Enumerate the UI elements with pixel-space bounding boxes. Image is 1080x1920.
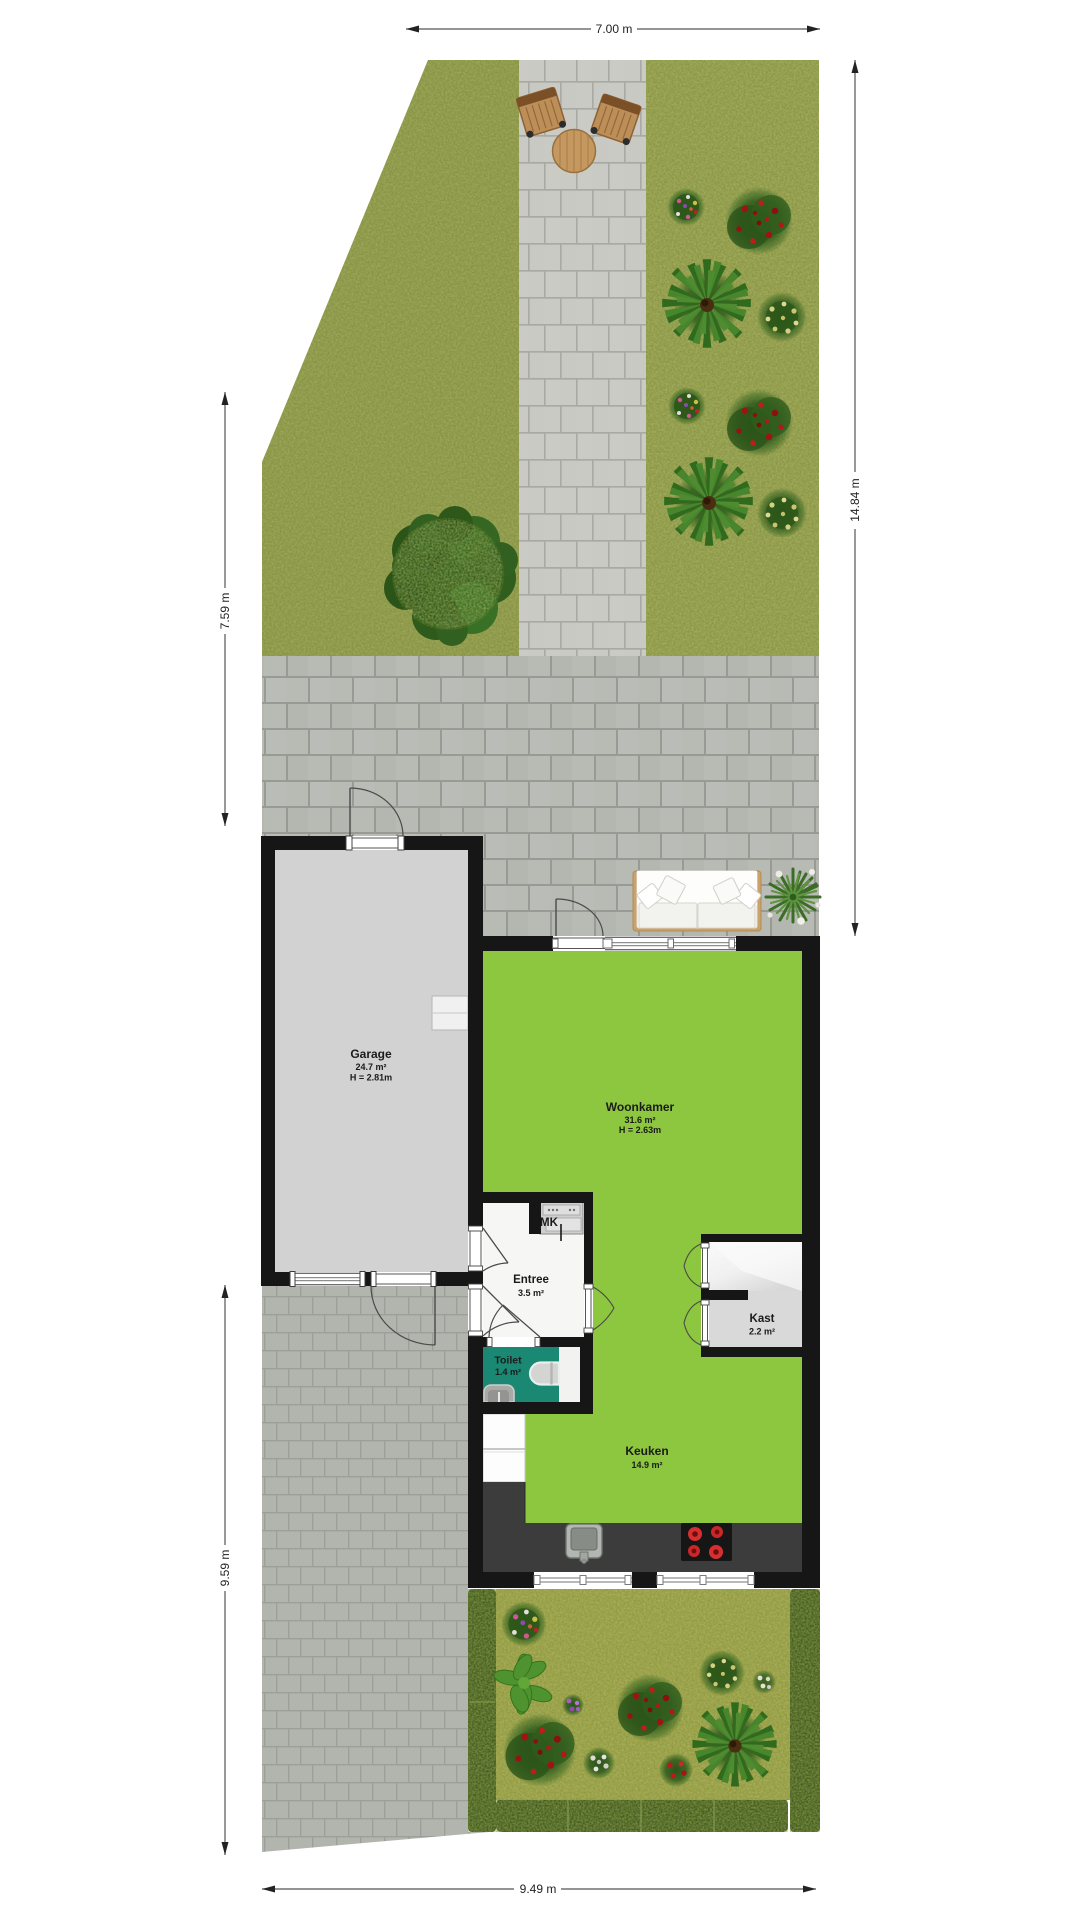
svg-text:Kast: Kast (750, 1313, 775, 1325)
svg-text:24.7 m²: 24.7 m² (355, 1062, 386, 1072)
svg-text:H = 2.81m: H = 2.81m (350, 1073, 392, 1083)
svg-text:3.5 m²: 3.5 m² (518, 1288, 544, 1298)
svg-text:7.00 m: 7.00 m (596, 22, 633, 36)
svg-text:Entree: Entree (513, 1274, 549, 1286)
svg-text:MK: MK (540, 1217, 559, 1229)
svg-text:14.84 m: 14.84 m (848, 478, 862, 521)
svg-text:1.4 m²: 1.4 m² (495, 1367, 521, 1377)
svg-text:Keuken: Keuken (625, 1444, 668, 1458)
svg-text:Woonkamer: Woonkamer (606, 1100, 675, 1114)
svg-text:Garage: Garage (350, 1047, 392, 1061)
svg-text:31.6 m²: 31.6 m² (624, 1115, 655, 1125)
svg-text:7.59 m: 7.59 m (218, 593, 232, 630)
svg-text:9.59 m: 9.59 m (218, 1550, 232, 1587)
svg-text:9.49 m: 9.49 m (520, 1882, 557, 1896)
svg-text:H = 2.63m: H = 2.63m (619, 1125, 661, 1135)
svg-text:14.9 m²: 14.9 m² (631, 1460, 662, 1470)
svg-text:Toilet: Toilet (494, 1355, 522, 1367)
svg-text:2.2 m²: 2.2 m² (749, 1327, 775, 1337)
